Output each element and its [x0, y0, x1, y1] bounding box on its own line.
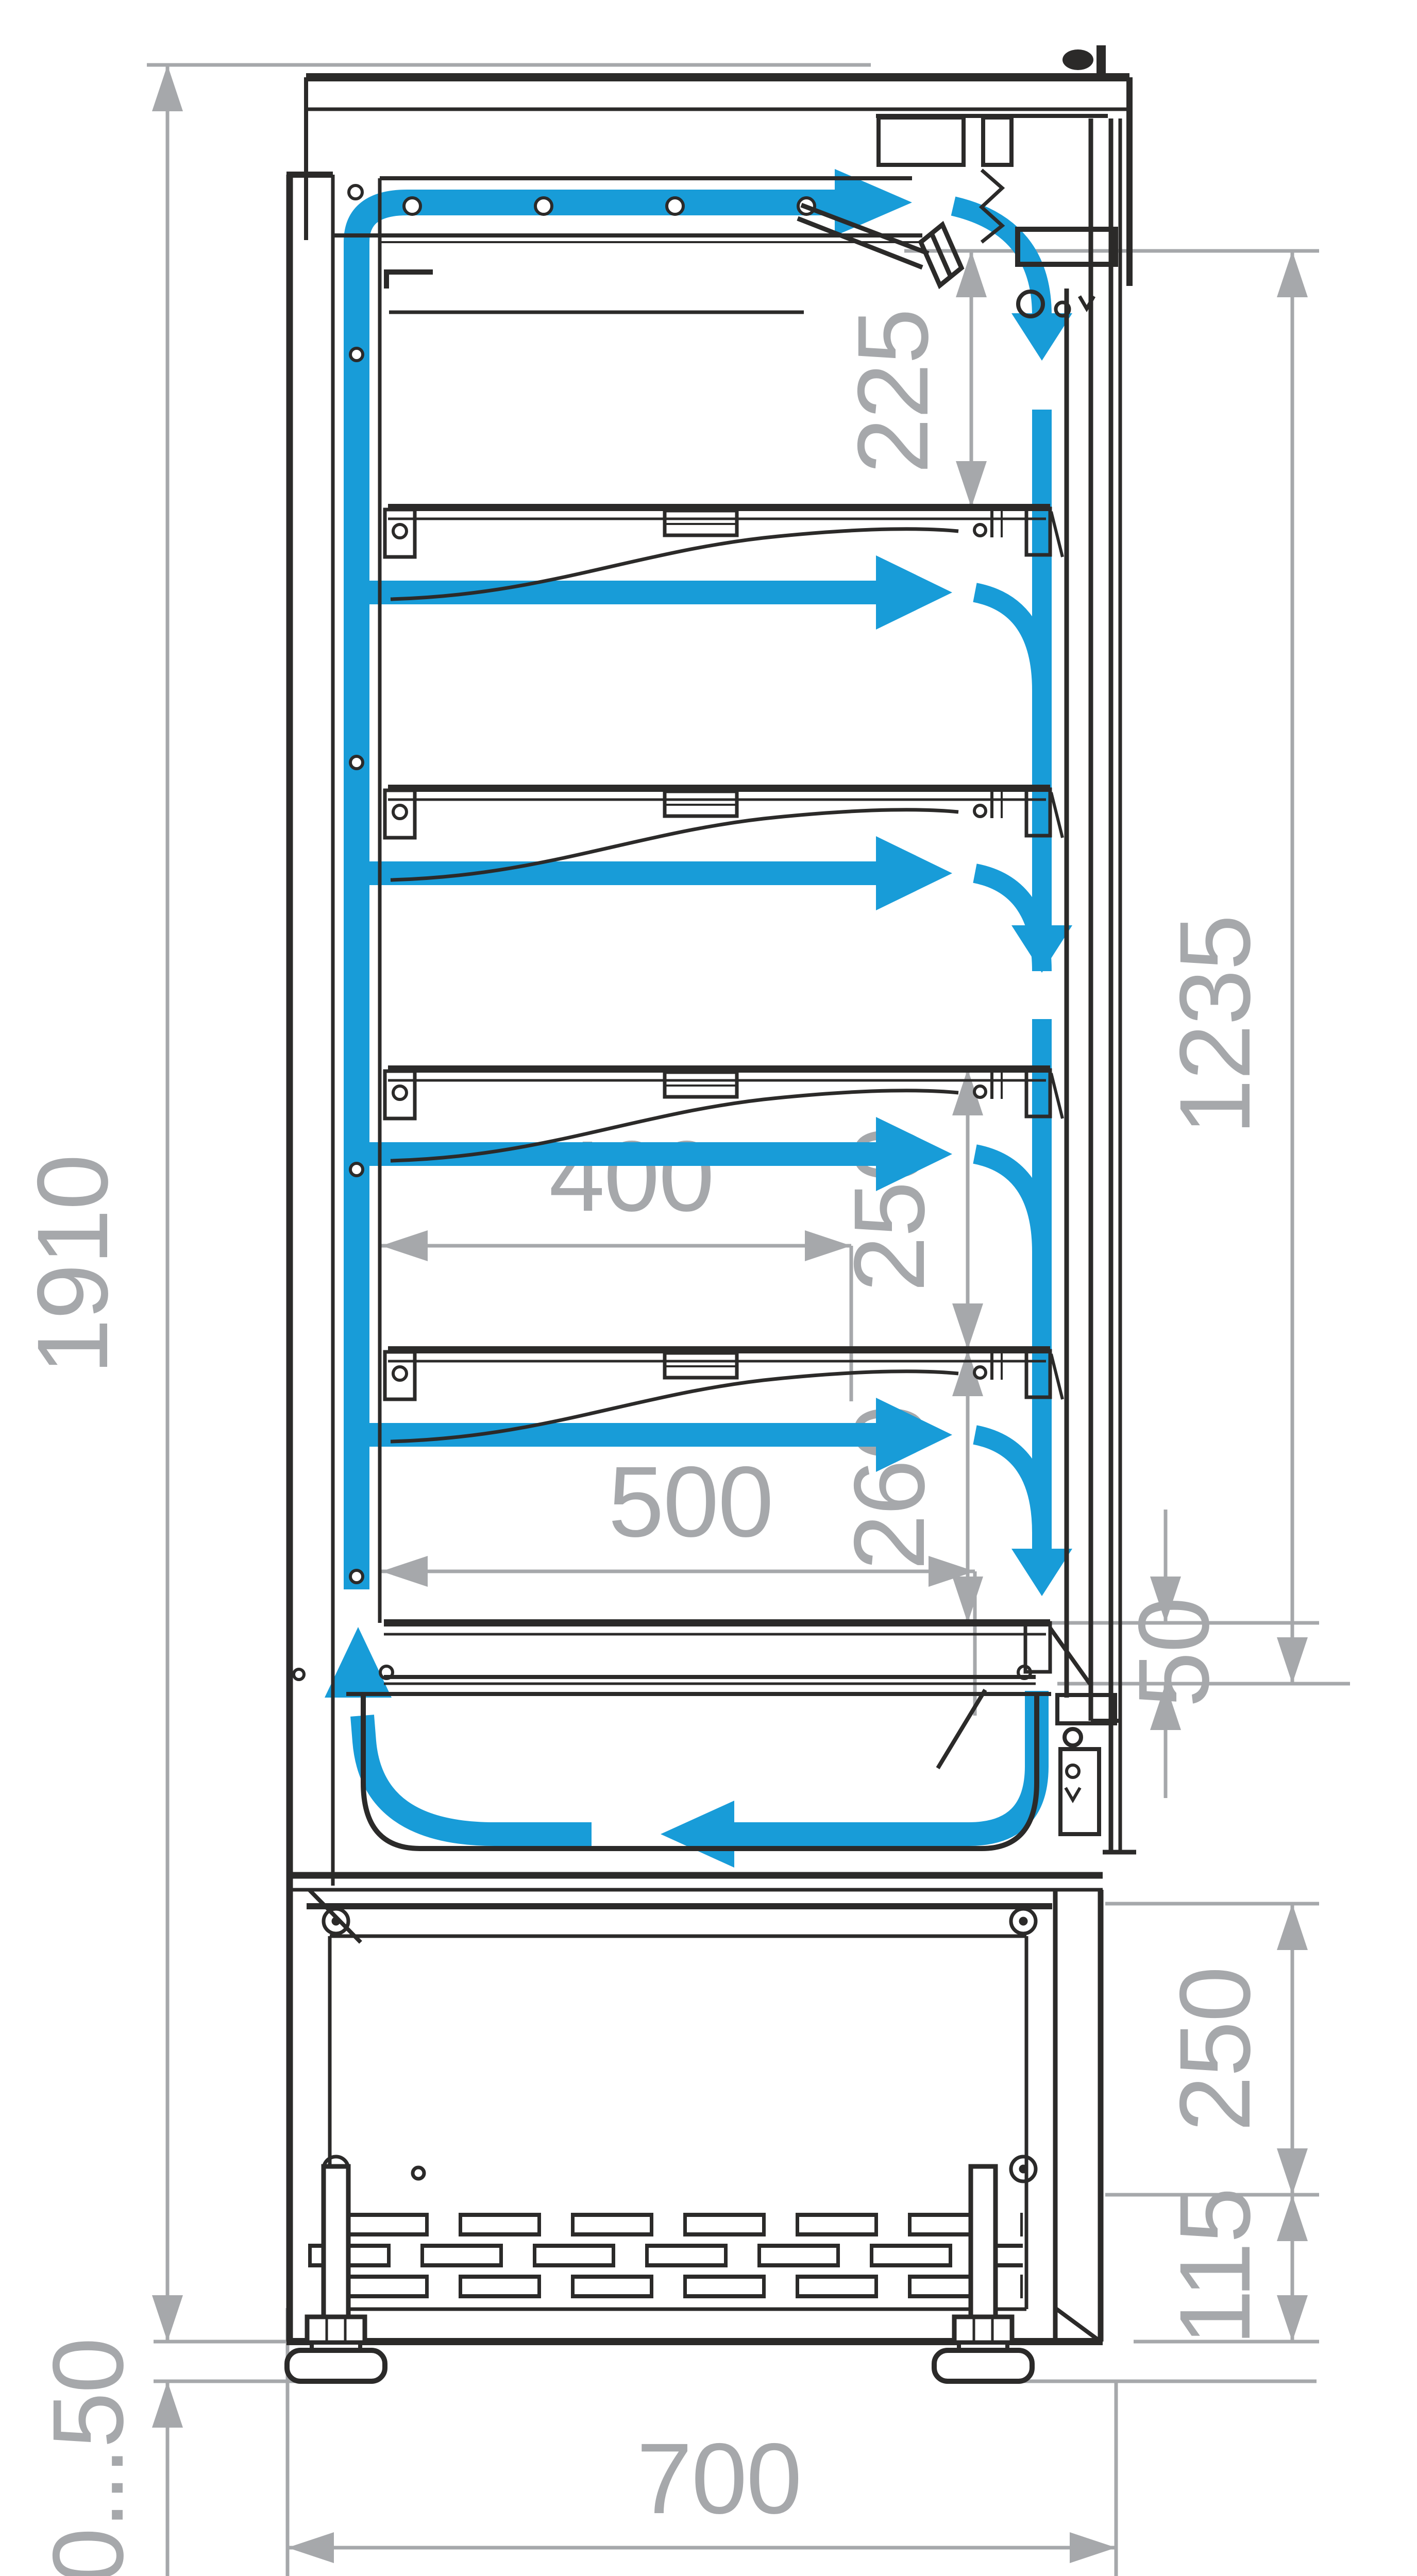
pivot-stem [1097, 45, 1106, 73]
dimension-return-gap: 50 [1118, 1510, 1230, 1798]
dimension-grille-height: 115 [1159, 2189, 1292, 2346]
hinge-bolt [1065, 1729, 1081, 1745]
air-curtain-arrowhead [1011, 1549, 1072, 1596]
air-hole [350, 1163, 363, 1176]
air-hole [349, 185, 362, 199]
airflow-shelf-arrow-2 [368, 836, 1042, 971]
airflow-return-arrowhead [661, 1801, 734, 1868]
corner-cut [1055, 2308, 1101, 2342]
rivet [294, 1669, 304, 1680]
dimension-label: 700 [636, 2422, 801, 2535]
airflow-layer [325, 169, 1072, 1868]
dimension-overall-height: 1910 [16, 65, 167, 2342]
screw [413, 2167, 424, 2179]
vent-grille [308, 2225, 1023, 2286]
lamp-housing [879, 117, 964, 165]
dimension-label: 225 [837, 309, 949, 473]
dimension-label: 1910 [16, 1155, 129, 1375]
air-hole [350, 756, 363, 769]
panel-screws [324, 1909, 1036, 2181]
dimension-machine-height: 250 [1159, 1904, 1292, 2195]
adjustable-foot-rear [287, 2166, 385, 2381]
glass-door [1067, 118, 1136, 1852]
dimension-label: 30...50 [32, 2338, 144, 2576]
dimension-opening-height: 1235 [1159, 251, 1292, 1684]
lamp-bracket [983, 117, 1011, 165]
adjustable-foot-front [934, 2166, 1032, 2381]
door-hinge-bottom-detail [1057, 1695, 1115, 1834]
dimension-shelf-depth: 400 [381, 1120, 851, 1246]
airflow-shelf-arrow-1 [368, 555, 1042, 690]
screw-center [1021, 2166, 1026, 2172]
deck-front-ramp [1050, 1628, 1090, 1684]
deck-front-rail [1025, 1623, 1050, 1672]
dimension-deck-spacing: 260 [833, 1350, 968, 1623]
air-curtain-arrowhead [1011, 313, 1072, 361]
air-hole [350, 1570, 363, 1583]
deflector-flap [798, 205, 961, 285]
latch-mark [1066, 1788, 1080, 1800]
dimension-shelf-spacing: 250 [833, 1069, 968, 1350]
dimension-label: 250 [1159, 1967, 1271, 2131]
dimension-label: 115 [1159, 2189, 1271, 2346]
air-hole [535, 198, 552, 214]
hinge-bolt-small [1067, 1765, 1079, 1777]
airflow-return-front [734, 1691, 1037, 1834]
dimension-label: 1235 [1159, 916, 1271, 1135]
airflow-return-back [362, 1716, 592, 1834]
dimension-label: 500 [608, 1446, 772, 1558]
dimension-label: 50 [1118, 1598, 1230, 1708]
dimension-layer: 1910 225 1235 250 260 400 [16, 65, 1350, 2576]
return-ramp [938, 1690, 985, 1768]
air-hole [667, 198, 683, 214]
air-hole [350, 348, 363, 361]
pivot-knob [1062, 49, 1093, 70]
screw-center [333, 1919, 339, 1924]
dimension-overall-depth: 700 [288, 2422, 1116, 2548]
dimension-foot-range: 30...50 [32, 2338, 167, 2576]
duct-bracket [386, 272, 433, 289]
dimension-top-clearance: 225 [837, 251, 971, 507]
air-hole [404, 198, 420, 214]
screw-center [1021, 1919, 1026, 1924]
technical-drawing: 1910 225 1235 250 260 400 [0, 0, 1417, 2576]
